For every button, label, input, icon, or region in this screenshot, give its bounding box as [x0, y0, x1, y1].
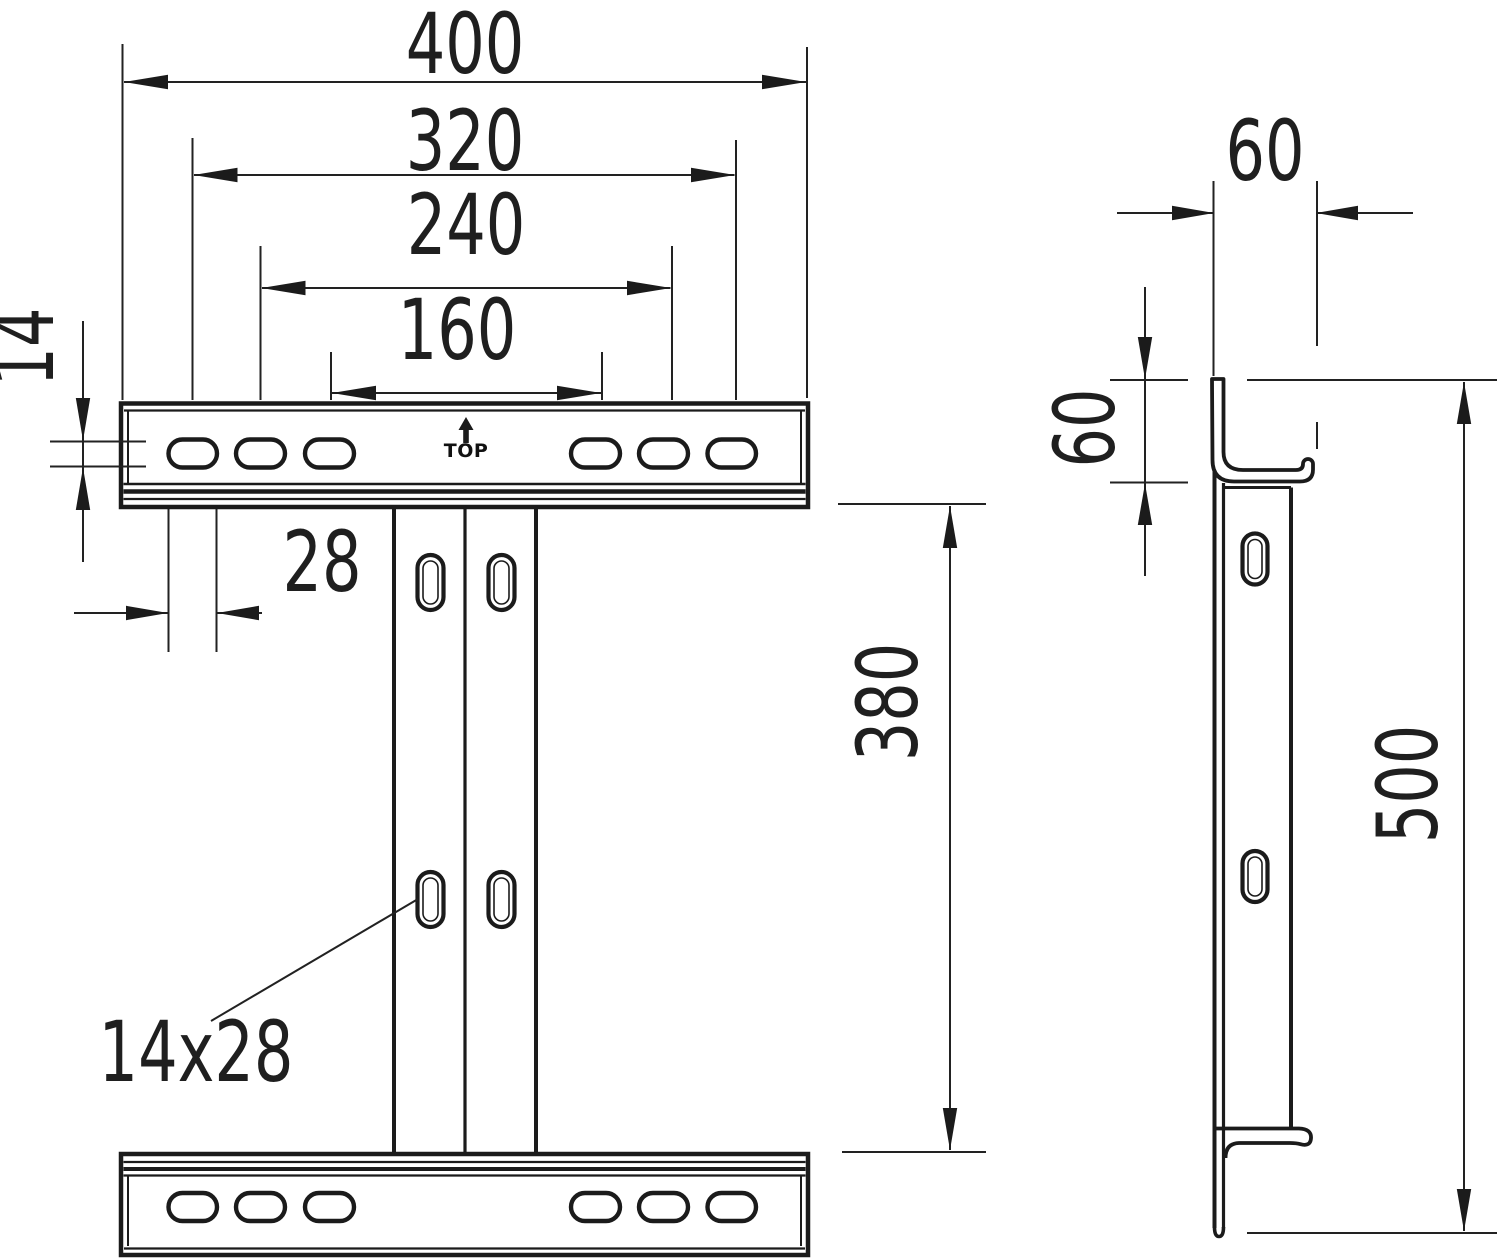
rail-slot: [305, 440, 354, 468]
dim-label-28: 28: [282, 514, 361, 612]
rail-slot: [639, 1193, 688, 1221]
side-slot: [1243, 851, 1268, 902]
dim-label-500: 500: [1360, 725, 1458, 844]
dim-web-height: 380: [838, 504, 986, 1152]
dim-label-240: 240: [407, 177, 526, 275]
column-slot: [418, 872, 444, 927]
column-slot: [418, 555, 444, 610]
dim-flange-rise: 60: [1037, 287, 1188, 576]
rail-slot: [708, 440, 757, 468]
dim-label-380: 380: [840, 643, 938, 762]
rail-slot: [571, 440, 620, 468]
dim-pitch-160: 160: [331, 282, 602, 401]
dim-label-160: 160: [398, 282, 517, 380]
dimensions: 400 320 240 160: [0, 0, 1497, 1233]
rail-slot: [639, 440, 688, 468]
side-slot: [1243, 534, 1268, 585]
column-web: [394, 507, 536, 1155]
front-view: TOP: [121, 404, 808, 1256]
top-marking-label: TOP: [444, 440, 489, 462]
dim-overall-height: 500: [1247, 380, 1497, 1233]
column-slot: [489, 555, 515, 610]
technical-drawing: TOP: [0, 0, 1500, 1259]
side-view: [1212, 379, 1313, 1237]
rail-slot: [236, 440, 285, 468]
bottom-rail: [121, 1154, 808, 1255]
rail-slot: [236, 1193, 285, 1221]
rail-slot: [169, 1193, 218, 1221]
dim-label-400: 400: [406, 0, 525, 93]
rail-slot: [708, 1193, 757, 1221]
column-slot: [489, 872, 515, 927]
top-rail-section: [1212, 379, 1313, 482]
dim-label-60-top: 60: [1225, 103, 1304, 201]
dim-label-60-side: 60: [1037, 388, 1135, 467]
dim-flange-depth: 60: [1117, 103, 1413, 449]
web-bottom-cap: [1215, 1227, 1224, 1237]
dim-label-14x28: 14x28: [99, 1004, 294, 1102]
leader-line: [211, 899, 418, 1021]
bottom-rail-section: [1213, 1129, 1311, 1159]
drawing-canvas: TOP: [0, 0, 1500, 1259]
label-slot-size: 14x28: [99, 899, 418, 1101]
rail-slot: [571, 1193, 620, 1221]
dim-label-14: 14: [0, 307, 73, 386]
rail-slot: [305, 1193, 354, 1221]
rail-slot: [169, 440, 218, 468]
top-rail: TOP: [121, 404, 808, 508]
dim-slot-width: 28: [74, 509, 362, 652]
